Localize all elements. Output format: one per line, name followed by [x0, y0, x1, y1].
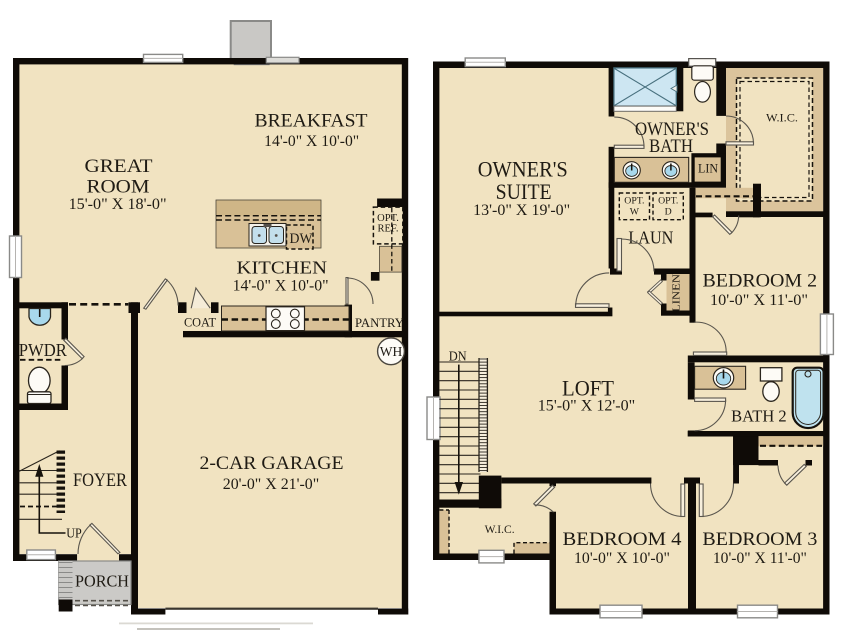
- svg-text:10'-0" X 10'-0": 10'-0" X 10'-0": [574, 550, 670, 567]
- svg-text:BATH 2: BATH 2: [731, 407, 787, 426]
- svg-text:W: W: [630, 207, 640, 218]
- svg-text:LAUN: LAUN: [628, 228, 673, 248]
- svg-text:PANTRY: PANTRY: [355, 315, 405, 330]
- svg-text:15'-0" X 12'-0": 15'-0" X 12'-0": [538, 398, 636, 415]
- svg-text:WH: WH: [380, 345, 403, 360]
- svg-text:PWDR: PWDR: [19, 340, 67, 360]
- svg-text:BEDROOM 2: BEDROOM 2: [703, 271, 818, 292]
- svg-text:W.I.C.: W.I.C.: [485, 522, 515, 536]
- svg-text:10'-0" X 11'-0": 10'-0" X 11'-0": [713, 550, 807, 567]
- svg-text:UP: UP: [66, 527, 82, 542]
- svg-text:14'-0" X 10'-0": 14'-0" X 10'-0": [233, 278, 329, 295]
- svg-text:LINEN: LINEN: [672, 274, 683, 312]
- svg-text:KITCHEN: KITCHEN: [237, 257, 328, 277]
- svg-text:15'-0" X 18'-0": 15'-0" X 18'-0": [69, 196, 167, 213]
- svg-text:PORCH: PORCH: [75, 572, 129, 591]
- svg-text:REF.: REF.: [377, 224, 398, 235]
- svg-text:20'-0" X 21'-0": 20'-0" X 21'-0": [223, 476, 320, 493]
- svg-text:DW: DW: [290, 231, 313, 247]
- svg-text:DN: DN: [449, 350, 467, 365]
- svg-text:10'-0" X 11'-0": 10'-0" X 11'-0": [710, 292, 808, 309]
- svg-text:OPT.: OPT.: [658, 196, 678, 207]
- svg-text:13'-0" X 19'-0": 13'-0" X 19'-0": [473, 202, 570, 219]
- svg-text:D: D: [665, 207, 672, 218]
- svg-text:BATH: BATH: [649, 137, 693, 157]
- svg-text:OWNER'S: OWNER'S: [478, 157, 568, 182]
- svg-text:GREAT: GREAT: [85, 156, 153, 177]
- svg-text:SUITE: SUITE: [496, 179, 552, 204]
- svg-text:BEDROOM 4: BEDROOM 4: [563, 529, 683, 550]
- svg-text:OPT.: OPT.: [624, 196, 644, 207]
- svg-text:14'-0" X 10'-0": 14'-0" X 10'-0": [264, 133, 359, 150]
- svg-text:BREAKFAST: BREAKFAST: [255, 111, 368, 132]
- svg-text:W.I.C.: W.I.C.: [766, 110, 798, 124]
- svg-text:OPT.: OPT.: [377, 213, 399, 224]
- svg-text:2-CAR GARAGE: 2-CAR GARAGE: [200, 453, 344, 474]
- svg-text:BEDROOM 3: BEDROOM 3: [702, 529, 817, 550]
- svg-text:LIN: LIN: [698, 162, 718, 176]
- svg-text:ROOM: ROOM: [87, 177, 150, 198]
- svg-text:FOYER: FOYER: [73, 471, 128, 491]
- svg-text:COAT: COAT: [184, 316, 216, 330]
